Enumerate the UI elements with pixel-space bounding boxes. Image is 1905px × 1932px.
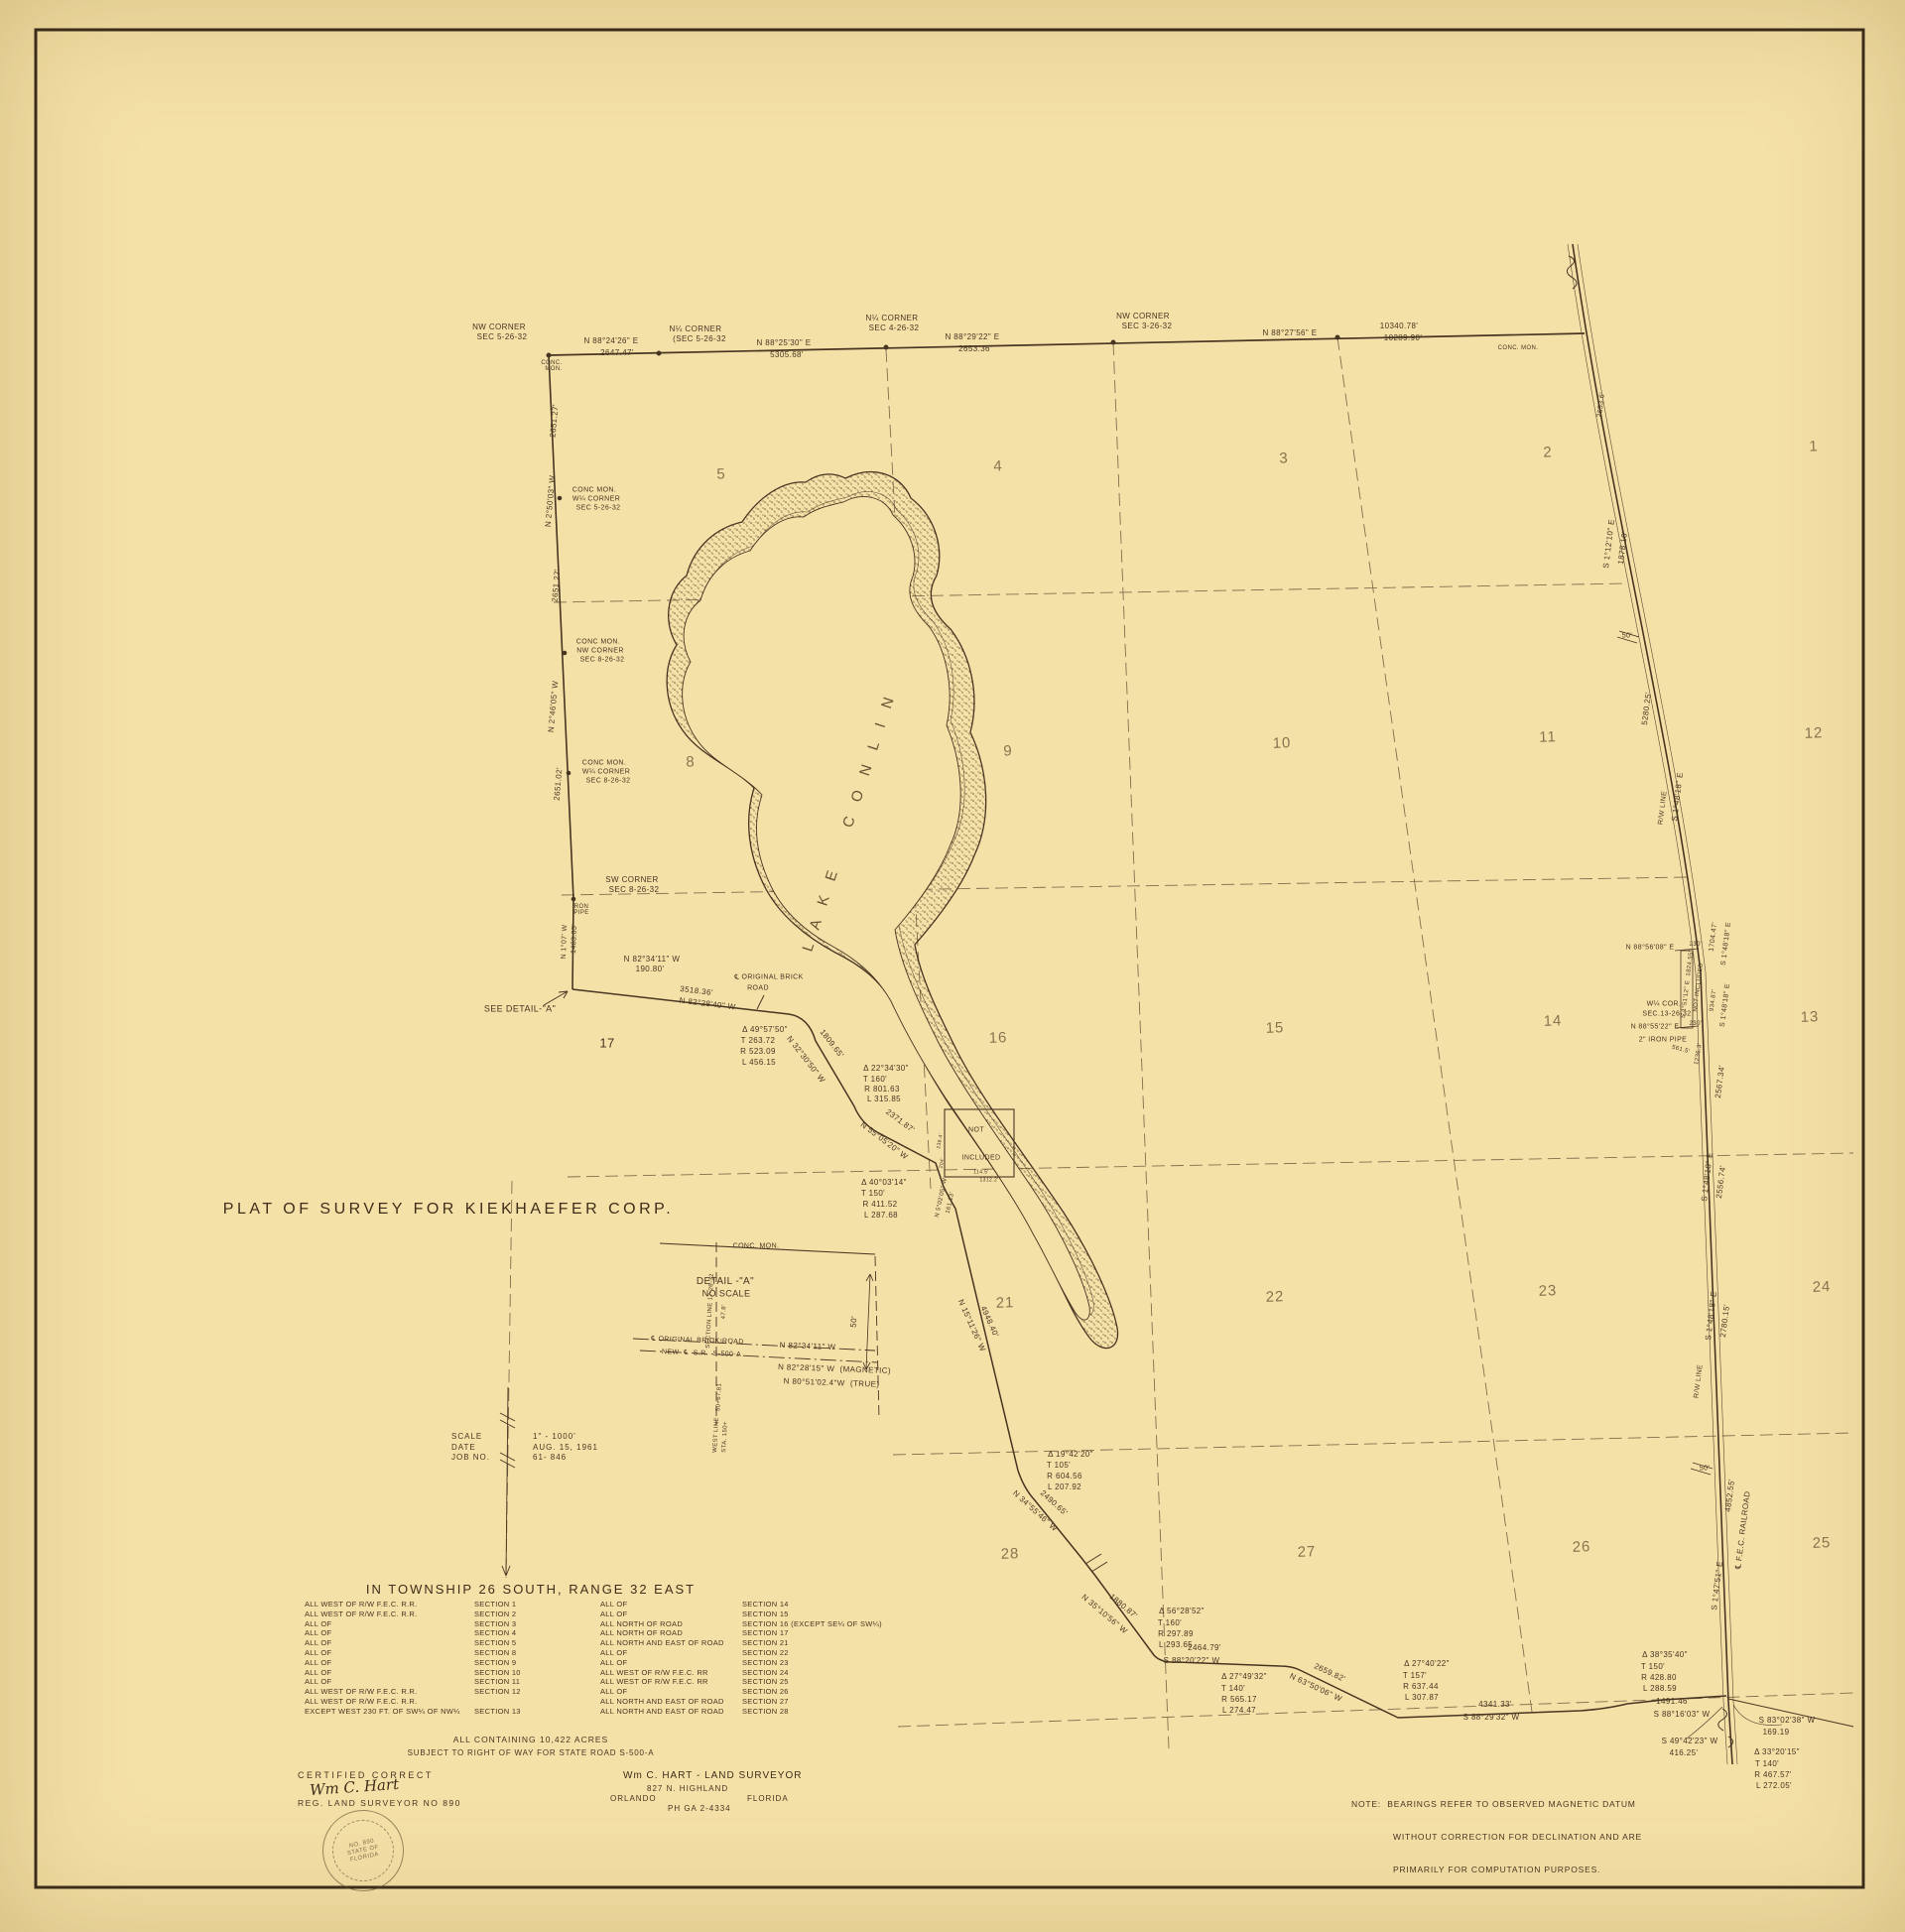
township-row: ALL WEST OF R/W F.E.C. R.R.SECTION 12 — [305, 1687, 521, 1697]
township-section: SECTION 2 — [474, 1610, 516, 1619]
map-label: MON. — [545, 366, 562, 372]
map-label: SEC 8-26-32 — [580, 657, 625, 664]
map-label: NW CORNER — [576, 648, 624, 655]
map-label: SEC.13-26-32 — [1642, 1011, 1691, 1018]
scale-row-value: AUG. 15, 1961 — [533, 1443, 598, 1454]
township-desc: ALL NORTH AND EAST OF ROAD — [600, 1697, 742, 1707]
township-row: ALL WEST OF R/W F.E.C. R.R.SECTION 2 — [305, 1610, 521, 1619]
map-label: N 88°27'56" E — [1262, 329, 1317, 337]
map-label: CONC MON. — [582, 760, 626, 767]
map-label: L 288.59 — [1643, 1685, 1677, 1693]
township-section: SECTION 9 — [474, 1658, 516, 1668]
map-label: T 150' — [1641, 1663, 1665, 1671]
scale-line — [500, 1387, 515, 1576]
map-label: Δ 33°20'15" — [1754, 1748, 1800, 1756]
map-label: S 83°02'38" W — [1759, 1717, 1816, 1725]
township-desc: ALL NORTH OF ROAD — [600, 1619, 742, 1629]
township-section: SECTION 25 — [742, 1677, 789, 1687]
map-label: 1491.46' — [1656, 1698, 1690, 1706]
map-label: Δ 22°34'30" — [863, 1065, 909, 1073]
map-label: 2464.79' — [1188, 1644, 1221, 1652]
township-section: SECTION 28 — [742, 1707, 789, 1717]
township-section: SECTION 21 — [742, 1638, 789, 1648]
map-canvas — [0, 0, 1905, 1932]
map-label: 169.19 — [1763, 1729, 1790, 1737]
section-number-24: 24 — [1812, 1278, 1831, 1296]
township-desc: ALL NORTH AND EAST OF ROAD — [600, 1638, 742, 1648]
note-line: NOTE: BEARINGS REFER TO OBSERVED MAGNETI… — [1351, 1799, 1642, 1810]
map-label: SEC 5-26-32 — [477, 333, 528, 341]
map-label: S 88°16'03" W — [1654, 1711, 1711, 1719]
section-number-12: 12 — [1804, 724, 1823, 742]
township-row: ALL WEST OF R/W F.E.C. RRSECTION 25 — [600, 1677, 882, 1687]
section-number-21: 21 — [995, 1294, 1014, 1312]
map-label: N 82°34'11" W — [624, 956, 681, 964]
township-desc: ALL WEST OF R/W F.E.C. R.R. — [305, 1687, 474, 1697]
scale-row-label: DATE — [451, 1443, 533, 1454]
township-desc: ALL WEST OF R/W F.E.C. R.R. — [305, 1697, 474, 1707]
surveyor-state: FLORIDA — [747, 1794, 789, 1803]
township-desc: ALL WEST OF R/W F.E.C. RR — [600, 1677, 742, 1687]
map-label: 50' — [1622, 633, 1632, 640]
township-desc: ALL NORTH AND EAST OF ROAD — [600, 1707, 742, 1717]
map-label: INCLUDED — [962, 1155, 1001, 1162]
township-row: ALL NORTH OF ROADSECTION 16 (EXCEPT SE¼ … — [600, 1619, 882, 1629]
map-label: SEC 5-26-32 — [576, 505, 621, 512]
section-number-13: 13 — [1800, 1008, 1819, 1026]
section-number-25: 25 — [1812, 1534, 1831, 1552]
map-label: W¼ COR. — [1647, 1001, 1682, 1008]
map-label: R 565.17 — [1221, 1696, 1257, 1704]
surveyor-city: ORLANDO — [610, 1794, 657, 1803]
map-label: R 637.44 — [1403, 1683, 1439, 1691]
map-label: T 157' — [1403, 1672, 1427, 1680]
map-label: L 287.68 — [864, 1212, 898, 1220]
township-desc: EXCEPT WEST 230 FT. OF SW¼ OF NW¼ — [305, 1707, 474, 1717]
map-label: S 49°42'23" W — [1662, 1738, 1718, 1745]
section-number-9: 9 — [1003, 742, 1013, 759]
map-label: L 207.92 — [1048, 1483, 1081, 1491]
map-label: NW CORNER — [1116, 313, 1170, 321]
township-desc: ALL WEST OF R/W F.E.C. R.R. — [305, 1610, 474, 1619]
township-desc: ALL WEST OF R/W F.E.C. RR — [600, 1668, 742, 1678]
township-desc: ALL OF — [600, 1648, 742, 1658]
township-row: ALL WEST OF R/W F.E.C. R.R. — [305, 1697, 521, 1707]
section-number-11: 11 — [1539, 728, 1557, 746]
township-section: SECTION 24 — [742, 1668, 789, 1678]
map-label: 190.80' — [636, 966, 665, 973]
township-section: SECTION 14 — [742, 1600, 789, 1610]
section-number-4: 4 — [993, 457, 1003, 474]
section-number-8: 8 — [686, 753, 696, 770]
map-label: ℄ ORIGINAL BRICK — [734, 974, 803, 981]
township-row: ALL OFSECTION 22 — [600, 1648, 882, 1658]
station-ticks — [1085, 1554, 1107, 1572]
map-label: W¼ CORNER — [582, 769, 630, 776]
map-label: R 428.80 — [1641, 1674, 1677, 1682]
township-row: ALL NORTH AND EAST OF ROADSECTION 28 — [600, 1707, 882, 1717]
map-label: R 297.89 — [1158, 1630, 1194, 1638]
township-section: SECTION 11 — [474, 1677, 520, 1687]
township-heading: IN TOWNSHIP 26 SOUTH, RANGE 32 EAST — [352, 1582, 709, 1597]
map-label: 2653.36' — [958, 345, 992, 353]
map-label: DETAIL -"A" — [697, 1277, 754, 1287]
map-label: T 160' — [1158, 1619, 1182, 1627]
section-number-14: 14 — [1543, 1012, 1562, 1030]
township-table-right: ALL OFSECTION 14ALL OFSECTION 15ALL NORT… — [600, 1600, 882, 1717]
township-section: SECTION 26 — [742, 1687, 789, 1697]
plat-sheet: NW CORNERSEC 5-26-32N 88°24'26" E2647.47… — [0, 0, 1905, 1932]
lake-inner-shore — [683, 496, 1090, 1320]
map-label: N¼ CORNER — [670, 325, 722, 333]
township-section: SECTION 23 — [742, 1658, 789, 1668]
scale-row-label: JOB NO. — [451, 1453, 533, 1464]
map-label: Δ 40°03'14" — [861, 1179, 907, 1187]
map-label: SEC 4-26-32 — [869, 324, 920, 332]
map-label: 50' — [850, 1316, 859, 1328]
map-label: N 88°55'22" E — [1631, 1024, 1680, 1031]
map-label: T 140' — [1221, 1685, 1245, 1693]
map-label: T 160' — [863, 1076, 887, 1084]
township-section: SECTION 16 (EXCEPT SE¼ OF SW¼) — [742, 1619, 882, 1629]
scale-row-value: 1" - 1000' — [533, 1432, 576, 1443]
township-desc: ALL WEST OF R/W F.E.C. R.R. — [305, 1600, 474, 1610]
seal-text: NO. 890 STATE OF FLORIDA — [345, 1837, 381, 1864]
map-label: Δ 49°57'50" — [742, 1026, 788, 1034]
township-section: SECTION 22 — [742, 1648, 789, 1658]
township-section: SECTION 15 — [742, 1610, 789, 1619]
township-section: SECTION 1 — [474, 1600, 516, 1610]
map-label: 10340.78' — [1380, 322, 1419, 330]
township-section: SECTION 12 — [474, 1687, 521, 1697]
map-label: N 88°24'26" E — [583, 337, 638, 345]
township-section: SECTION 13 — [474, 1707, 521, 1717]
township-row: ALL NORTH AND EAST OF ROADSECTION 21 — [600, 1638, 882, 1648]
bearings-note: NOTE: BEARINGS REFER TO OBSERVED MAGNETI… — [1351, 1777, 1642, 1897]
township-row: ALL WEST OF R/W F.E.C. R.R.SECTION 1 — [305, 1600, 521, 1610]
map-label: 4341.33' — [1478, 1701, 1512, 1709]
section-number-5: 5 — [716, 465, 726, 482]
township-row: ALL OFSECTION 8 — [305, 1648, 521, 1658]
map-label: N 88°56'08" E — [1626, 945, 1675, 952]
map-label: R 801.63 — [864, 1086, 900, 1094]
township-desc: ALL OF — [305, 1658, 474, 1668]
map-label: 114.5' — [973, 1171, 989, 1176]
registration-line: REG. LAND SURVEYOR NO 890 — [298, 1798, 461, 1808]
section-number-28: 28 — [1000, 1545, 1019, 1563]
map-label: 2" IRON PIPE — [1639, 1037, 1688, 1044]
township-row: ALL OFSECTION 10 — [305, 1668, 521, 1678]
township-desc: ALL OF — [600, 1687, 742, 1697]
map-label: Δ 38°35'40" — [1642, 1651, 1688, 1659]
township-row: ALL OFSECTION 15 — [600, 1610, 882, 1619]
section-number-3: 3 — [1279, 450, 1289, 466]
township-desc: ALL OF — [305, 1619, 474, 1629]
scale-row: DATEAUG. 15, 1961 — [451, 1443, 598, 1454]
page-title: PLAT OF SURVEY FOR KIEKHAEFER CORP. — [223, 1201, 674, 1219]
section-number-22: 22 — [1265, 1288, 1284, 1306]
map-label: R 604.56 — [1047, 1473, 1082, 1481]
acreage-line: ALL CONTAINING 10,422 ACRES — [347, 1735, 714, 1744]
map-label: L 315.85 — [867, 1095, 901, 1103]
map-label: PIPE — [573, 910, 588, 916]
township-section: SECTION 27 — [742, 1697, 789, 1707]
township-desc: ALL OF — [600, 1610, 742, 1619]
section-number-16: 16 — [988, 1029, 1007, 1047]
township-row: ALL OFSECTION 23 — [600, 1658, 882, 1668]
note-line: PRIMARILY FOR COMPUTATION PURPOSES. — [1351, 1865, 1642, 1875]
map-label: 230' — [1690, 942, 1703, 948]
map-label: NW CORNER — [472, 323, 526, 331]
scale-block: SCALE1" - 1000'DATEAUG. 15, 1961JOB NO.6… — [451, 1432, 598, 1464]
map-label: CONC. MON. — [1498, 345, 1539, 351]
section-number-27: 27 — [1297, 1543, 1316, 1561]
map-label: SEC 8-26-32 — [609, 886, 660, 894]
township-desc: ALL OF — [305, 1668, 474, 1678]
township-row: ALL OFSECTION 4 — [305, 1628, 521, 1638]
township-row: ALL OFSECTION 3 — [305, 1619, 521, 1629]
section-number-15: 15 — [1265, 1019, 1284, 1037]
map-label: T 263.72 — [741, 1037, 776, 1045]
note-line: WITHOUT CORRECTION FOR DECLINATION AND A… — [1351, 1832, 1642, 1843]
map-label: L 272.05' — [1756, 1782, 1792, 1790]
scale-row: JOB NO.61- 846 — [451, 1453, 598, 1464]
surveyor-name: Wm C. HART - LAND SURVEYOR — [623, 1770, 802, 1781]
township-row: ALL NORTH AND EAST OF ROADSECTION 27 — [600, 1697, 882, 1707]
township-desc: ALL OF — [600, 1658, 742, 1668]
map-label: Δ 27°40'22" — [1404, 1660, 1450, 1668]
township-row: ALL OFSECTION 11 — [305, 1677, 521, 1687]
map-label: 50' — [1700, 1466, 1710, 1473]
map-label: CONC MON. — [576, 639, 620, 646]
map-label: T 150' — [861, 1190, 885, 1198]
surveyor-phone: PH GA 2-4334 — [668, 1804, 731, 1813]
township-section: SECTION 10 — [474, 1668, 521, 1678]
map-label: 17 — [599, 1037, 614, 1050]
scale-row-value: 61- 846 — [533, 1453, 567, 1464]
map-label: 230' — [1690, 1021, 1703, 1027]
township-row: ALL WEST OF R/W F.E.C. RRSECTION 24 — [600, 1668, 882, 1678]
map-label: T 140' — [1755, 1760, 1779, 1768]
map-label: N 88°29'22" E — [945, 333, 999, 341]
township-section: SECTION 8 — [474, 1648, 516, 1658]
township-desc: ALL NORTH OF ROAD — [600, 1628, 742, 1638]
subject-line: SUBJECT TO RIGHT OF WAY FOR STATE ROAD S… — [347, 1748, 714, 1757]
map-label: N 88°25'30" E — [756, 339, 811, 347]
map-label: 10289.90' — [1384, 334, 1423, 342]
map-label: 416.25' — [1670, 1749, 1699, 1757]
map-label: S 88°20'22" W — [1164, 1657, 1220, 1665]
map-label: R 467.57' — [1754, 1771, 1792, 1779]
map-label: SEE DETAIL-"A" — [484, 1005, 556, 1014]
township-desc: ALL OF — [305, 1648, 474, 1658]
township-table-left: ALL WEST OF R/W F.E.C. R.R.SECTION 1ALL … — [305, 1600, 521, 1717]
section-number-2: 2 — [1543, 444, 1553, 460]
township-row: ALL NORTH OF ROADSECTION 17 — [600, 1628, 882, 1638]
township-desc: ALL OF — [305, 1628, 474, 1638]
map-label: R 411.52 — [862, 1201, 897, 1209]
township-section: SECTION 4 — [474, 1628, 516, 1638]
map-label: 5305.68' — [770, 351, 804, 359]
section-number-23: 23 — [1538, 1282, 1557, 1300]
map-label: Δ 27°49'32" — [1221, 1673, 1267, 1681]
section-number-26: 26 — [1572, 1538, 1590, 1556]
map-label: ROAD — [747, 985, 769, 992]
map-label: N 1°07' W — [561, 924, 569, 959]
township-desc: ALL OF — [305, 1638, 474, 1648]
map-label: NOT — [968, 1127, 984, 1134]
township-row: ALL OFSECTION 9 — [305, 1658, 521, 1668]
surveyor-address: 827 N. HIGHLAND — [647, 1784, 728, 1793]
township-section: SECTION 17 — [742, 1628, 789, 1638]
section-number-1: 1 — [1809, 438, 1819, 454]
map-label: 1463.05' — [571, 924, 578, 954]
map-label: 2647.47' — [600, 349, 634, 357]
map-label: SEC 3-26-32 — [1122, 322, 1173, 330]
map-label: (SEC 5-26-32 — [673, 335, 726, 343]
scale-row-label: SCALE — [451, 1432, 533, 1443]
map-label: CONC MON. — [572, 487, 616, 494]
map-label: W¼ CORNER — [572, 496, 620, 503]
map-label: R 523.09 — [740, 1048, 776, 1056]
map-label: Δ 56°28'52" — [1159, 1608, 1205, 1615]
township-row: EXCEPT WEST 230 FT. OF SW¼ OF NW¼SECTION… — [305, 1707, 521, 1717]
map-label: 1312.2' — [979, 1179, 998, 1184]
map-label: CONC. MON. — [733, 1243, 780, 1250]
township-row: ALL OFSECTION 14 — [600, 1600, 882, 1610]
scale-row: SCALE1" - 1000' — [451, 1432, 598, 1443]
map-label: L 274.47 — [1222, 1707, 1256, 1715]
map-label: T 105' — [1047, 1462, 1071, 1470]
township-section: SECTION 3 — [474, 1619, 516, 1629]
map-label: S 88°29'32" W — [1463, 1714, 1520, 1722]
map-label: SEC 8-26-32 — [586, 778, 631, 785]
township-desc: ALL OF — [600, 1600, 742, 1610]
section-number-10: 10 — [1272, 734, 1291, 752]
township-section: SECTION 5 — [474, 1638, 516, 1648]
detail-a-inset — [633, 1242, 879, 1425]
map-label: 47.8' — [721, 1304, 728, 1319]
township-desc: ALL OF — [305, 1677, 474, 1687]
map-label: SW CORNER — [605, 876, 658, 884]
map-label: L 307.87 — [1405, 1694, 1439, 1702]
map-label: N¼ CORNER — [866, 315, 919, 322]
township-row: ALL OFSECTION 26 — [600, 1687, 882, 1697]
township-row: ALL OFSECTION 5 — [305, 1638, 521, 1648]
map-label: Δ 19°42'20" — [1048, 1451, 1093, 1459]
map-label: L 456.15 — [742, 1059, 776, 1067]
